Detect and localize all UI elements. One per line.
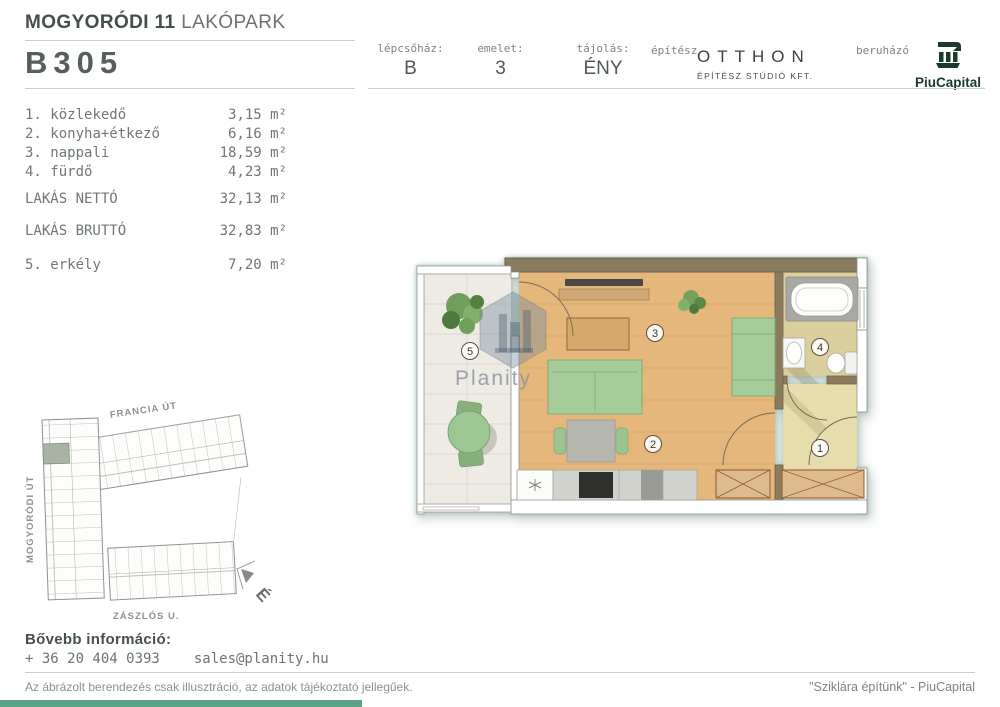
staircase-label: lépcsőház: <box>368 42 453 55</box>
floor-value: 3 <box>453 58 548 80</box>
unit-divider <box>25 88 355 89</box>
toilet <box>827 352 857 374</box>
staircase-value: B <box>368 58 453 80</box>
footer-slogan: "Sziklára építünk" - PiuCapital <box>809 680 975 694</box>
footer-accent-bar <box>0 700 362 707</box>
project-title-bold: MOGYORÓDI 11 <box>25 12 176 33</box>
net-value: 32,13 m² <box>220 190 287 209</box>
cell-staircase: lépcsőház: B <box>368 42 453 80</box>
footer-divider <box>25 672 975 673</box>
kitchen-counter <box>517 470 697 500</box>
title-divider <box>25 40 355 41</box>
footer-disclaimer: Az ábrázolt berendezés csak illusztráció… <box>25 680 413 694</box>
balcony-area-row: 5. erkély 7,20 m² <box>25 256 287 275</box>
marker-hall: 1 <box>817 443 823 455</box>
header-divider <box>368 88 985 89</box>
room-row-1: 1. közlekedő 3,15 m² <box>25 106 287 125</box>
architect-name: OTTHON <box>697 47 811 67</box>
room-list: 1. közlekedő 3,15 m² 2. konyha+étkező 6,… <box>25 106 287 182</box>
sofa <box>548 360 642 414</box>
watermark-text: Planity <box>455 367 532 390</box>
piucapital-column-icon <box>930 40 966 69</box>
cooktop <box>579 472 613 498</box>
architect-label: építész <box>651 44 697 57</box>
room-num: 2. <box>25 126 42 142</box>
courtyard-line <box>233 477 241 547</box>
room-num: 3. <box>25 145 42 161</box>
marker-living: 3 <box>652 328 658 340</box>
cell-orientation: tájolás: ÉNY <box>548 42 658 80</box>
top-wall <box>505 258 867 272</box>
bottom-wall <box>511 500 867 514</box>
room-area: 3,15 m² <box>228 106 287 125</box>
west-building-wing <box>42 418 104 600</box>
developer-label: beruházó <box>856 44 909 57</box>
wardrobe <box>716 470 864 498</box>
room-name: konyha+étkező <box>50 126 160 142</box>
contact-phone[interactable]: + 36 20 404 0393 <box>25 651 160 667</box>
room-name: erkély <box>50 257 101 273</box>
compass-icon: É <box>237 561 279 607</box>
room-name: fürdő <box>50 164 92 180</box>
marker-bath: 4 <box>817 342 823 354</box>
daybed <box>732 318 775 396</box>
orientation-value: ÉNY <box>548 58 658 80</box>
street-label-bottom: ZÁSZLÓS U. <box>113 610 179 622</box>
contact-line: + 36 20 404 0393 sales@planity.hu <box>25 651 329 667</box>
room-num: 1. <box>25 107 42 123</box>
room-area: 6,16 m² <box>228 125 287 144</box>
tv-console <box>559 279 649 300</box>
room-num: 5. <box>25 257 42 273</box>
room-area: 7,20 m² <box>228 256 287 275</box>
contact-email[interactable]: sales@planity.hu <box>194 651 329 667</box>
cell-floor: emelet: 3 <box>453 42 548 80</box>
marker-balcony: 5 <box>467 346 473 358</box>
marker-dining: 2 <box>650 439 656 451</box>
room-row-3: 3. nappali 18,59 m² <box>25 144 287 163</box>
room-area: 4,23 m² <box>228 163 287 182</box>
orientation-label: tájolás: <box>548 42 658 55</box>
floor-label: emelet: <box>453 42 548 55</box>
developer-logo: PiuCapital <box>908 40 988 90</box>
unit-info-table: lépcsőház: B emelet: 3 tájolás: ÉNY <box>368 42 658 80</box>
project-title-light: LAKÓPARK <box>176 12 286 33</box>
room-name: közlekedő <box>50 107 126 123</box>
bathroom-window <box>857 288 867 330</box>
site-plan: FRANCIA ÚT MOGYORÓDI ÚT ZÁSZLÓS U. É <box>25 385 290 627</box>
unit-id: B305 <box>25 45 123 81</box>
site-plan-drawing: FRANCIA ÚT MOGYORÓDI ÚT ZÁSZLÓS U. É <box>25 385 290 627</box>
architect-subtitle: ÉPÍTÉSZ STÚDIÓ KFT. <box>697 71 813 81</box>
room-row-2: 2. konyha+étkező 6,16 m² <box>25 125 287 144</box>
net-area-row: LAKÁS NETTÓ 32,13 m² <box>25 190 287 209</box>
room-area: 18,59 m² <box>220 144 287 163</box>
south-building-wing <box>108 542 237 601</box>
room-num: 4. <box>25 164 42 180</box>
floor-plan-drawing: Planity 5 3 4 2 1 <box>415 252 885 522</box>
highlighted-unit <box>43 443 70 464</box>
compass-north-label: É <box>252 585 274 606</box>
living-hall-wall <box>775 272 783 500</box>
washbasin <box>783 338 805 368</box>
coffee-table <box>567 318 629 350</box>
gross-value: 32,83 m² <box>220 222 287 241</box>
contact-heading: Bővebb információ: <box>25 631 171 648</box>
room-name: nappali <box>50 145 109 161</box>
bathtub <box>786 277 858 321</box>
project-title: MOGYORÓDI 11 LAKÓPARK <box>25 12 285 34</box>
gross-area-row: LAKÁS BRUTTÓ 32,83 m² <box>25 222 287 241</box>
net-label: LAKÁS NETTÓ <box>25 190 118 209</box>
street-label-top: FRANCIA ÚT <box>109 400 178 421</box>
room-row-4: 4. fürdő 4,23 m² <box>25 163 287 182</box>
floor-plan: Planity 5 3 4 2 1 <box>415 252 885 522</box>
street-label-left: MOGYORÓDI ÚT <box>25 476 36 563</box>
gross-label: LAKÁS BRUTTÓ <box>25 222 126 241</box>
